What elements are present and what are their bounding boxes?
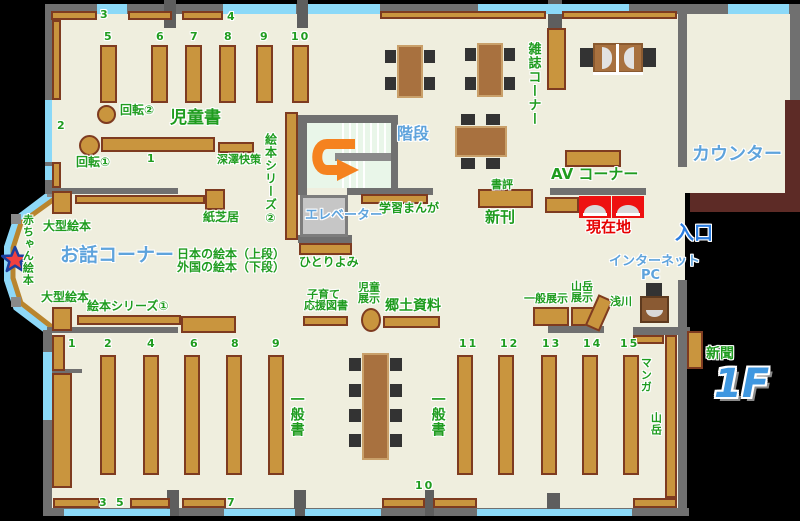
shelf-3 (51, 11, 97, 20)
label-akachan-ehon: 赤ちゃん絵本 (21, 214, 33, 324)
study-table (362, 353, 389, 460)
shelf-7 (185, 45, 202, 103)
sofa-armrest (580, 48, 593, 67)
shelf-g2 (100, 355, 116, 475)
label-ohanashi-corner: お話コーナー (60, 245, 174, 266)
window (45, 166, 52, 180)
shelf-g1a (52, 335, 65, 371)
shelf-number: 2 (57, 120, 67, 132)
shelf-shinbun (687, 331, 703, 369)
shelf-4 (182, 11, 223, 20)
shelf-kamishibai (75, 195, 205, 204)
window (308, 4, 380, 14)
shelf-number: 13 (542, 338, 561, 350)
shelf-g6 (184, 355, 200, 475)
wall-stairs-top (298, 115, 397, 123)
label-ogata-ehon-1: 大型絵本 (43, 220, 91, 233)
label-ippansho-left: 一般書 (288, 392, 304, 448)
kaiten2-rack (97, 105, 116, 124)
shelf-zasshi (547, 28, 566, 90)
chair (461, 158, 475, 169)
reading-table (455, 126, 507, 157)
wall-pc-bottom (633, 327, 690, 335)
shelf-number: 3 (100, 9, 110, 21)
label-ehon-series1: 絵本シリーズ① (87, 300, 169, 313)
chair (390, 384, 402, 397)
label-kaiten2: 回転② (120, 104, 154, 117)
chair (461, 114, 475, 125)
shelf-g3 (53, 498, 100, 508)
shelf-g11 (457, 355, 473, 475)
window (45, 100, 52, 162)
shelf-number: 3 (99, 497, 109, 509)
shelf-1 (101, 137, 215, 152)
label-fukazawa: 深澤快策 (217, 154, 261, 166)
shelf-sangaku-wall (665, 335, 677, 498)
shelf-g12 (498, 355, 514, 475)
shelf-g4 (143, 355, 159, 475)
shelf-number: 8 (231, 338, 241, 350)
shelf-2 (52, 20, 61, 100)
chair (390, 358, 402, 371)
window (64, 509, 170, 516)
window (477, 509, 632, 516)
library-floor-map: 3 4 5 6 7 8 9 10 2 1 回転② 回転① 児童書 深澤快策 絵本… (0, 0, 800, 521)
reading-table (397, 45, 423, 98)
label-counter: カウンター (692, 145, 782, 165)
pillar (297, 0, 308, 28)
chair (385, 50, 396, 63)
shelf-8 (219, 45, 236, 103)
jido-tenji-table (361, 308, 381, 332)
shelf-g13 (541, 355, 557, 475)
shelf-number: 7 (227, 497, 237, 509)
shelf-number: 12 (500, 338, 519, 350)
label-kyodo-shiryo: 郷土資料 (385, 299, 441, 315)
shelf-ehon-series1-box (181, 316, 236, 333)
label-gakushu-manga: 学習まんが (379, 202, 439, 215)
wall-gates (550, 188, 646, 195)
wall-right-bottom (678, 280, 687, 516)
label-ippan-tenji: 一般展示 (524, 293, 568, 305)
shelf-g7 (182, 498, 226, 508)
shelf-number: 10 (291, 31, 310, 43)
chair (424, 77, 435, 90)
label-kaiten1: 回転① (76, 156, 110, 169)
label-asakawa: 浅川 (610, 296, 632, 308)
shelf-wall (562, 11, 677, 19)
shelf-g15 (623, 355, 639, 475)
label-ippansho-right: 一般書 (429, 392, 445, 448)
sofa-base (593, 72, 643, 75)
shelf-ehon-series1 (77, 315, 181, 325)
shelf-g9 (268, 355, 284, 475)
chair (390, 409, 402, 422)
shelf-kamishibai-box (205, 189, 225, 210)
shelf-number: 4 (227, 11, 237, 23)
gate-base (583, 213, 607, 216)
chair (349, 434, 361, 447)
chair (486, 114, 500, 125)
shelf-number: 9 (260, 31, 270, 43)
chair (349, 384, 361, 397)
shelf-number: 6 (190, 338, 200, 350)
sofa-divider (616, 44, 619, 72)
shelf-number: 9 (272, 338, 282, 350)
label-shohyo: 書評 (491, 179, 513, 191)
shelf-bottom-right (633, 498, 677, 508)
shelf-5 (100, 45, 117, 103)
label-shinkan: 新刊 (485, 209, 515, 226)
counter-desk (785, 100, 800, 194)
shelf-number: 1 (147, 153, 157, 165)
shelf-number: 10 (415, 480, 434, 492)
shelf-gate-side (545, 197, 579, 213)
label-jido-tenji-2: 展示 (358, 293, 380, 305)
label-iriguchi: 入口 (675, 223, 713, 244)
label-ouen-tosho: 応援図書 (304, 300, 348, 312)
label-sangaku: 山岳 (649, 412, 661, 444)
shelf-number: 11 (459, 338, 478, 350)
shelf-kosodate (303, 316, 348, 326)
label-genzaichi: 現在地 (586, 219, 631, 236)
shelf-number: 7 (190, 31, 200, 43)
shelf-g5 (130, 498, 170, 508)
shelf-wall (128, 11, 172, 20)
chair (424, 50, 435, 63)
shelf-number: 2 (104, 338, 114, 350)
label-jidosho: 児童書 (170, 109, 221, 128)
shelf-g10a (382, 498, 425, 508)
pc-monitor (646, 283, 662, 296)
chair (385, 77, 396, 90)
shelf-6 (151, 45, 168, 103)
shelf-g8 (226, 355, 242, 475)
shelf-9 (256, 45, 273, 103)
label-pc: PC (641, 269, 660, 284)
label-zasshi-corner: 雑誌コーナー (525, 42, 540, 162)
shelf-g10b (433, 498, 477, 508)
shelf (52, 162, 61, 188)
wall-right-top (790, 4, 800, 100)
shelf-10 (292, 45, 309, 103)
shelf-shinkan (478, 189, 533, 208)
shelf-number: 5 (116, 497, 126, 509)
label-ehon-series2: 絵本シリーズ② (263, 133, 276, 245)
wall-counter-room (678, 4, 687, 167)
shelf-number: 6 (156, 31, 166, 43)
label-av-corner: AV コーナー (551, 166, 638, 183)
label-sangaku-tenji-2: 展示 (571, 292, 593, 304)
chair (390, 434, 402, 447)
shelf-number: 5 (104, 31, 114, 43)
shelf-ogata-ehon-2 (52, 307, 72, 331)
label-ogata-ehon-2: 大型絵本 (41, 291, 89, 304)
shelf-number: 4 (147, 338, 157, 350)
shelf-kyodo (383, 316, 440, 328)
shelf-wall (380, 11, 546, 19)
window (728, 4, 789, 14)
gate-base (616, 213, 640, 216)
shelf-g1b (52, 373, 72, 488)
chair (504, 77, 515, 90)
shelf-g14 (582, 355, 598, 475)
chair (465, 77, 476, 90)
label-kamishibai: 紙芝居 (203, 211, 239, 224)
shelf-ippan-tenji (533, 307, 569, 326)
shelf-number: 1 (68, 338, 78, 350)
shelf-number: 8 (224, 31, 234, 43)
stairs-direction-arrow (303, 133, 361, 185)
sofa-armrest (643, 48, 656, 67)
chair (504, 48, 515, 61)
reading-table (477, 43, 503, 97)
label-kaidan: 階段 (397, 125, 429, 143)
shelf-ehon-series2 (285, 112, 298, 240)
counter-desk (690, 193, 800, 212)
label-elevator: エレベーター (305, 209, 383, 224)
label-hitoriyomi: ひとりよみ (299, 256, 359, 269)
chair (486, 158, 500, 169)
chair (465, 48, 476, 61)
shelf-fukazawa (218, 142, 254, 153)
window (43, 352, 52, 420)
kaiten1-rack (79, 135, 100, 156)
chair (349, 409, 361, 422)
chair (349, 358, 361, 371)
label-manga: マンガ (639, 357, 651, 405)
window (224, 509, 295, 516)
label-floor-1f: 1F (714, 362, 769, 407)
shelf-hitoriyomi (299, 243, 352, 255)
label-gaikoku-ehon: 外国の絵本（下段） (177, 261, 285, 274)
shelf-number: 15 (620, 338, 639, 350)
window (305, 509, 381, 516)
shelf-number: 14 (583, 338, 602, 350)
shelf-ogata-ehon-1 (52, 191, 72, 214)
